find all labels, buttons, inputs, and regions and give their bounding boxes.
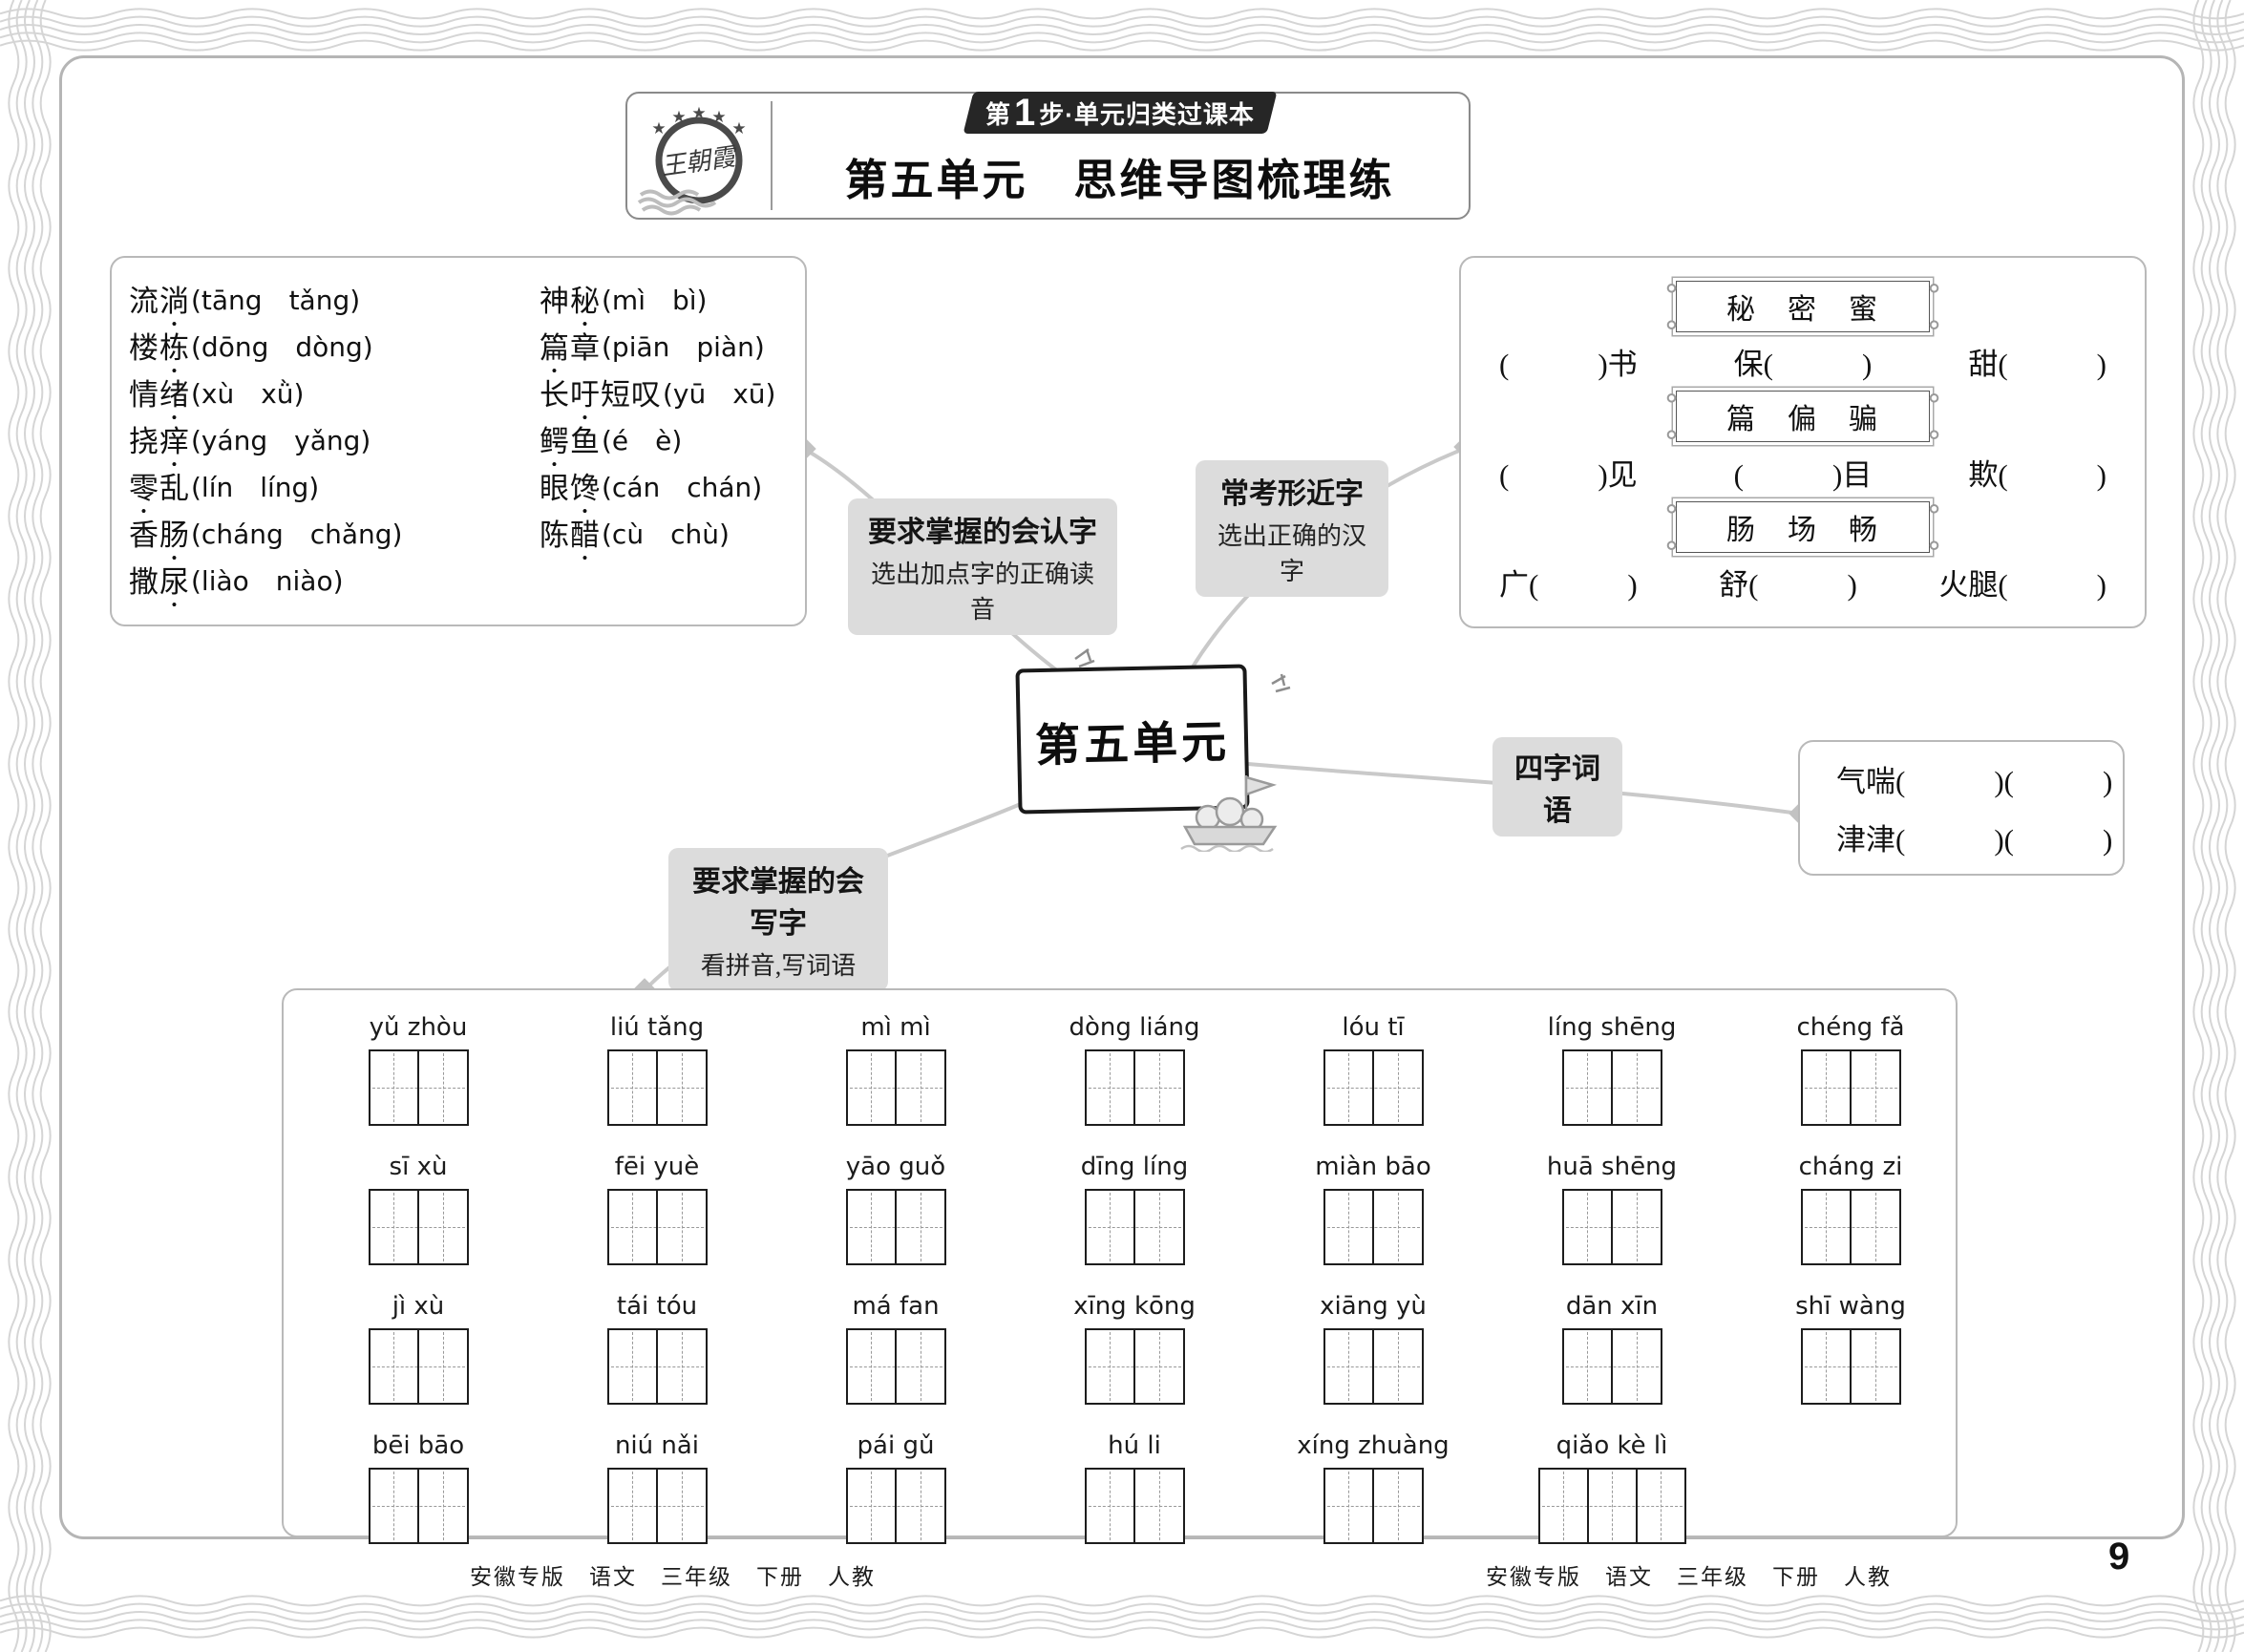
writing-grid bbox=[1562, 1189, 1662, 1265]
writing-grid bbox=[369, 1189, 469, 1265]
pinyin-label: sī xù bbox=[390, 1153, 448, 1181]
writing-grid bbox=[1323, 1328, 1424, 1405]
four-word-box: 气喘( )( ) 津津( )( ) bbox=[1798, 740, 2125, 876]
writing-grid bbox=[846, 1049, 946, 1126]
write-item: mì mì bbox=[776, 1013, 1015, 1126]
write-item: sī xù bbox=[299, 1153, 538, 1265]
pinyin-label: xīng kōng bbox=[1073, 1292, 1196, 1321]
writing-cell bbox=[895, 1191, 944, 1263]
write-words-grid: yǔ zhòu liú tǎng mì mì bbox=[284, 990, 1956, 1544]
writing-cell bbox=[1850, 1330, 1899, 1403]
footer-edition-left: 安徽专版 语文 三年级 下册 人教 bbox=[470, 1558, 876, 1591]
similar-chars-banner: 秘 密 蜜 bbox=[1676, 281, 1930, 332]
write-item: bēi bāo bbox=[299, 1431, 538, 1544]
word-item: 挠痒(yáng yǎng) bbox=[129, 415, 403, 462]
scroll-curl-icon bbox=[1665, 388, 1678, 445]
writing-grid bbox=[1085, 1328, 1185, 1405]
pinyin-options: (mì bì) bbox=[602, 280, 707, 318]
pinyin-label: dān xīn bbox=[1566, 1292, 1658, 1321]
writing-cell bbox=[1325, 1051, 1373, 1124]
writing-cell bbox=[1850, 1191, 1899, 1263]
label-subtitle: 选出加点字的正确读音 bbox=[859, 555, 1106, 625]
pinyin-label: shī wàng bbox=[1795, 1292, 1906, 1321]
write-item: qiǎo kè lì bbox=[1492, 1431, 1731, 1544]
pinyin-label: cháng zi bbox=[1799, 1153, 1903, 1181]
writing-grid bbox=[369, 1328, 469, 1405]
writing-cell bbox=[1587, 1470, 1636, 1542]
label-title: 要求掌握的会认字 bbox=[859, 508, 1106, 550]
writing-cell bbox=[848, 1191, 896, 1263]
pinyin-options: (xù xǜ) bbox=[191, 373, 304, 412]
pinyin-label: fēi yuè bbox=[615, 1153, 700, 1181]
scroll-curl-icon bbox=[1928, 498, 1940, 556]
pinyin-label: niú nǎi bbox=[615, 1431, 699, 1460]
writing-cell bbox=[895, 1470, 944, 1542]
write-item: xiāng yù bbox=[1254, 1292, 1492, 1405]
writing-cell bbox=[656, 1051, 706, 1124]
writing-cell bbox=[848, 1470, 896, 1542]
write-item: cháng zi bbox=[1731, 1153, 1970, 1265]
label-four-word: 四字词语 bbox=[1492, 737, 1622, 837]
publisher-logo-emblem-icon: ★★★ ★★ 王朝霞 bbox=[627, 94, 771, 218]
writing-cell bbox=[1611, 1051, 1661, 1124]
writing-cell bbox=[370, 1470, 418, 1542]
write-item: dòng liáng bbox=[1015, 1013, 1254, 1126]
write-item: dān xīn bbox=[1492, 1292, 1731, 1405]
write-item: hú li bbox=[1015, 1431, 1254, 1544]
fill-blank-item: 火腿( ) bbox=[1938, 561, 2106, 604]
write-item: líng shēng bbox=[1492, 1013, 1731, 1126]
writing-cell bbox=[1325, 1191, 1373, 1263]
svg-text:★: ★ bbox=[711, 108, 726, 126]
word-text: 神秘 bbox=[540, 277, 601, 320]
pinyin-label: tái tóu bbox=[617, 1292, 697, 1321]
similar-chars-banner: 肠 场 畅 bbox=[1676, 501, 1930, 553]
fill-blank-row: 广( ) 舒( ) 火腿( ) bbox=[1486, 561, 2120, 604]
write-item: yāo guǒ bbox=[776, 1153, 1015, 1265]
scroll-curl-icon bbox=[1928, 278, 1940, 335]
writing-grid bbox=[607, 1049, 708, 1126]
pinyin-label: qiǎo kè lì bbox=[1556, 1431, 1668, 1460]
fill-blank-item: 欺( ) bbox=[1968, 451, 2106, 494]
word-item: 陈醋(cù chù) bbox=[540, 509, 775, 556]
word-item: 神秘(mì bì) bbox=[540, 275, 775, 322]
word-item: 鳄鱼(é è) bbox=[540, 415, 775, 462]
write-item: fēi yuè bbox=[538, 1153, 776, 1265]
write-item: chéng fǎ bbox=[1731, 1013, 1970, 1126]
similar-chars-banner: 篇 偏 骗 bbox=[1676, 391, 1930, 442]
svg-text:★: ★ bbox=[731, 119, 746, 138]
svg-text:★: ★ bbox=[691, 104, 706, 122]
label-write-words: 要求掌握的会写字 看拼音,写词语 bbox=[668, 848, 888, 991]
writing-cell bbox=[1087, 1330, 1134, 1403]
word-item: 零乱(lín líng) bbox=[129, 462, 403, 509]
scroll-curl-icon bbox=[1665, 278, 1678, 335]
word-text: 撒尿 bbox=[129, 558, 190, 601]
word-text: 流淌 bbox=[129, 277, 190, 320]
fill-blank-item: 广( ) bbox=[1499, 561, 1638, 604]
pinyin-label: pái gǔ bbox=[857, 1431, 935, 1460]
write-words-box: yǔ zhòu liú tǎng mì mì bbox=[282, 988, 1958, 1537]
writing-grid bbox=[369, 1049, 469, 1126]
label-recognize-words: 要求掌握的会认字 选出加点字的正确读音 bbox=[848, 498, 1117, 635]
writing-cell bbox=[1611, 1330, 1661, 1403]
fill-blank-item: ( )目 bbox=[1734, 451, 1873, 494]
writing-grid bbox=[1801, 1049, 1901, 1126]
fill-blank-row: ( )书 保( ) 甜( ) bbox=[1486, 340, 2120, 383]
boat-doodle-icon bbox=[1177, 770, 1282, 852]
pinyin-label: lóu tī bbox=[1342, 1013, 1404, 1042]
pinyin-options: (liào niào) bbox=[191, 561, 344, 599]
writing-grid bbox=[369, 1468, 469, 1544]
writing-grid bbox=[607, 1468, 708, 1544]
pinyin-options: (dōng dòng) bbox=[191, 327, 373, 365]
writing-cell bbox=[609, 1470, 657, 1542]
pinyin-label: yǔ zhòu bbox=[370, 1013, 468, 1042]
word-item: 长吁短叹(yū xū) bbox=[540, 369, 775, 415]
writing-cell bbox=[895, 1330, 944, 1403]
writing-cell bbox=[609, 1330, 657, 1403]
pinyin-label: líng shēng bbox=[1548, 1013, 1677, 1042]
publisher-logo: ★★★ ★★ 王朝霞 bbox=[627, 94, 771, 218]
label-title: 四字词语 bbox=[1502, 745, 1613, 829]
writing-cell bbox=[1564, 1191, 1612, 1263]
word-item: 香肠(cháng chǎng) bbox=[129, 509, 403, 556]
write-item: shī wàng bbox=[1731, 1292, 1970, 1405]
page-number: 9 bbox=[2108, 1536, 2129, 1578]
writing-cell bbox=[417, 1470, 467, 1542]
worksheet-page: ★★★ ★★ 王朝霞 第 1 步·单元归类过课本 第五单元 思维导图梳理练 bbox=[0, 0, 2244, 1652]
label-subtitle: 选出正确的汉字 bbox=[1207, 517, 1377, 587]
step-badge: 第 1 步·单元归类过课本 bbox=[963, 92, 1278, 134]
pinyin-options: (piān piàn) bbox=[602, 327, 765, 365]
pinyin-label: mì mì bbox=[860, 1013, 930, 1042]
similar-chars-box: 秘 密 蜜 ( )书 保( ) 甜( ) 篇 偏 骗 bbox=[1459, 256, 2147, 628]
writing-cell bbox=[656, 1330, 706, 1403]
writing-cell bbox=[656, 1191, 706, 1263]
write-item: jì xù bbox=[299, 1292, 538, 1405]
writing-cell bbox=[370, 1330, 418, 1403]
svg-text:★: ★ bbox=[651, 119, 666, 138]
pinyin-label: xíng zhuàng bbox=[1297, 1431, 1449, 1460]
wave-border-left bbox=[6, 0, 53, 1652]
writing-cell bbox=[1133, 1191, 1183, 1263]
writing-cell bbox=[848, 1330, 896, 1403]
word-item: 篇章(piān piàn) bbox=[540, 322, 775, 369]
pinyin-label: bēi bāo bbox=[372, 1431, 464, 1460]
writing-grid bbox=[1801, 1328, 1901, 1405]
writing-grid bbox=[846, 1189, 946, 1265]
write-item: xíng zhuàng bbox=[1254, 1431, 1492, 1544]
writing-cell bbox=[1564, 1330, 1612, 1403]
writing-cell bbox=[1540, 1470, 1587, 1542]
write-item: xīng kōng bbox=[1015, 1292, 1254, 1405]
write-item: niú nǎi bbox=[538, 1431, 776, 1544]
footer-edition-right: 安徽专版 语文 三年级 下册 人教 bbox=[1486, 1558, 1892, 1591]
writing-grid bbox=[1323, 1468, 1424, 1544]
banner-characters: 肠 场 畅 bbox=[1726, 515, 1879, 546]
writing-cell bbox=[1636, 1470, 1684, 1542]
writing-cell bbox=[1850, 1051, 1899, 1124]
writing-grid bbox=[846, 1468, 946, 1544]
fill-blank-item: 甜( ) bbox=[1968, 340, 2106, 383]
writing-cell bbox=[1564, 1051, 1612, 1124]
pinyin-label: hú li bbox=[1108, 1431, 1161, 1460]
pinyin-label: má fan bbox=[852, 1292, 939, 1321]
word-item: 撒尿(liào niào) bbox=[129, 556, 403, 603]
write-item: huā shēng bbox=[1492, 1153, 1731, 1265]
writing-cell bbox=[1325, 1470, 1373, 1542]
word-item: 流淌(tāng tǎng) bbox=[129, 275, 403, 322]
write-item: miàn bāo bbox=[1254, 1153, 1492, 1265]
write-item: yǔ zhòu bbox=[299, 1013, 538, 1126]
fill-blank-item: ( )书 bbox=[1499, 340, 1638, 383]
fill-blank-row: ( )见 ( )目 欺( ) bbox=[1486, 451, 2120, 494]
word-text: 挠痒 bbox=[129, 417, 190, 460]
writing-cell bbox=[1372, 1470, 1422, 1542]
pinyin-options: (cán chán) bbox=[602, 467, 762, 505]
writing-cell bbox=[1133, 1330, 1183, 1403]
word-text: 眼馋 bbox=[540, 464, 601, 507]
fill-blank-item: 保( ) bbox=[1734, 340, 1873, 383]
scroll-curl-icon bbox=[1665, 498, 1678, 556]
wave-border-right bbox=[2191, 0, 2238, 1652]
writing-grid bbox=[1538, 1468, 1686, 1544]
pinyin-label: liú tǎng bbox=[610, 1013, 704, 1042]
write-item: tái tóu bbox=[538, 1292, 776, 1405]
writing-cell bbox=[609, 1051, 657, 1124]
writing-cell bbox=[609, 1191, 657, 1263]
pinyin-options: (tāng tǎng) bbox=[191, 280, 360, 318]
banner-characters: 篇 偏 骗 bbox=[1726, 404, 1879, 435]
svg-text:★: ★ bbox=[671, 108, 686, 126]
pinyin-options: (é è) bbox=[602, 420, 682, 458]
word-text: 楼栋 bbox=[129, 324, 190, 367]
writing-grid bbox=[1323, 1049, 1424, 1126]
writing-cell bbox=[656, 1470, 706, 1542]
pinyin-options: (yáng yǎng) bbox=[191, 420, 370, 458]
scroll-curl-icon bbox=[1928, 388, 1940, 445]
label-subtitle: 看拼音,写词语 bbox=[680, 946, 877, 982]
writing-cell bbox=[1611, 1191, 1661, 1263]
pinyin-options: (yū xū) bbox=[663, 373, 775, 412]
writing-cell bbox=[1133, 1051, 1183, 1124]
word-item: 楼栋(dōng dòng) bbox=[129, 322, 403, 369]
badge-step-text: 步·单元归类过课本 bbox=[1039, 95, 1255, 131]
writing-grid bbox=[846, 1328, 946, 1405]
pinyin-label: huā shēng bbox=[1547, 1153, 1677, 1181]
word-text: 零乱 bbox=[129, 464, 190, 507]
page-title: 第五单元 思维导图梳理练 bbox=[771, 145, 1469, 207]
label-title: 常考形近字 bbox=[1207, 470, 1377, 512]
word-text: 鳄鱼 bbox=[540, 417, 601, 460]
writing-grid bbox=[1562, 1049, 1662, 1126]
writing-grid bbox=[1562, 1328, 1662, 1405]
recognize-words-box: 流淌(tāng tǎng) 楼栋(dōng dòng) 情绪(xù xǜ) 挠痒… bbox=[110, 256, 807, 626]
pinyin-label: xiāng yù bbox=[1320, 1292, 1427, 1321]
four-word-item: 津津( )( ) bbox=[1836, 815, 2123, 858]
writing-cell bbox=[1803, 1191, 1851, 1263]
writing-cell bbox=[1087, 1470, 1134, 1542]
pinyin-label: chéng fǎ bbox=[1796, 1013, 1904, 1042]
pinyin-label: dòng liáng bbox=[1069, 1013, 1199, 1042]
writing-cell bbox=[370, 1051, 418, 1124]
writing-grid bbox=[607, 1328, 708, 1405]
four-word-item: 气喘( )( ) bbox=[1836, 757, 2123, 800]
writing-cell bbox=[1372, 1330, 1422, 1403]
writing-cell bbox=[1087, 1051, 1134, 1124]
writing-cell bbox=[1803, 1051, 1851, 1124]
writing-cell bbox=[1325, 1330, 1373, 1403]
word-text: 香肠 bbox=[129, 511, 190, 554]
label-similar-chars: 常考形近字 选出正确的汉字 bbox=[1196, 460, 1388, 597]
write-item: dīng líng bbox=[1015, 1153, 1254, 1265]
writing-grid bbox=[607, 1189, 708, 1265]
pinyin-label: dīng líng bbox=[1081, 1153, 1188, 1181]
banner-characters: 秘 密 蜜 bbox=[1726, 294, 1879, 326]
word-text: 篇章 bbox=[540, 324, 601, 367]
fill-blank-item: ( )见 bbox=[1499, 451, 1638, 494]
writing-cell bbox=[1133, 1470, 1183, 1542]
pinyin-options: (lín líng) bbox=[191, 467, 319, 505]
writing-cell bbox=[1087, 1191, 1134, 1263]
unit-title: 第五单元 bbox=[1034, 704, 1230, 773]
pinyin-options: (cháng chǎng) bbox=[191, 514, 403, 552]
writing-cell bbox=[417, 1051, 467, 1124]
writing-cell bbox=[1803, 1330, 1851, 1403]
writing-cell bbox=[417, 1330, 467, 1403]
writing-cell bbox=[1372, 1191, 1422, 1263]
writing-grid bbox=[1085, 1468, 1185, 1544]
pinyin-label: yāo guǒ bbox=[846, 1153, 945, 1181]
recognize-words-right-column: 神秘(mì bì) 篇章(piān piàn) 长吁短叹(yū xū) 鳄鱼(é… bbox=[540, 275, 775, 556]
write-item: lóu tī bbox=[1254, 1013, 1492, 1126]
writing-grid bbox=[1323, 1189, 1424, 1265]
writing-grid bbox=[1801, 1189, 1901, 1265]
word-item: 情绪(xù xǜ) bbox=[129, 369, 403, 415]
pinyin-options: (cù chù) bbox=[602, 514, 730, 552]
writing-cell bbox=[1372, 1051, 1422, 1124]
pinyin-label: jì xù bbox=[392, 1292, 445, 1321]
word-text: 情绪 bbox=[129, 371, 190, 413]
write-item: pái gǔ bbox=[776, 1431, 1015, 1544]
writing-cell bbox=[848, 1051, 896, 1124]
word-text: 陈醋 bbox=[540, 511, 601, 554]
writing-cell bbox=[417, 1191, 467, 1263]
wave-border-top bbox=[0, 6, 2244, 53]
writing-cell bbox=[370, 1191, 418, 1263]
write-item: liú tǎng bbox=[538, 1013, 776, 1126]
wave-border-bottom bbox=[0, 1593, 2244, 1641]
word-item: 眼馋(cán chán) bbox=[540, 462, 775, 509]
recognize-words-left-column: 流淌(tāng tǎng) 楼栋(dōng dòng) 情绪(xù xǜ) 挠痒… bbox=[129, 275, 403, 603]
writing-grid bbox=[1085, 1189, 1185, 1265]
writing-cell bbox=[895, 1051, 944, 1124]
fill-blank-item: 舒( ) bbox=[1719, 561, 1857, 604]
pinyin-label: miàn bāo bbox=[1315, 1153, 1431, 1181]
label-title: 要求掌握的会写字 bbox=[680, 858, 877, 942]
writing-grid bbox=[1085, 1049, 1185, 1126]
badge-step-label: 第 bbox=[985, 95, 1010, 131]
write-item: má fan bbox=[776, 1292, 1015, 1405]
badge-step-number: 1 bbox=[1014, 94, 1035, 132]
page-header: ★★★ ★★ 王朝霞 第 1 步·单元归类过课本 第五单元 思维导图梳理练 bbox=[625, 92, 1471, 220]
